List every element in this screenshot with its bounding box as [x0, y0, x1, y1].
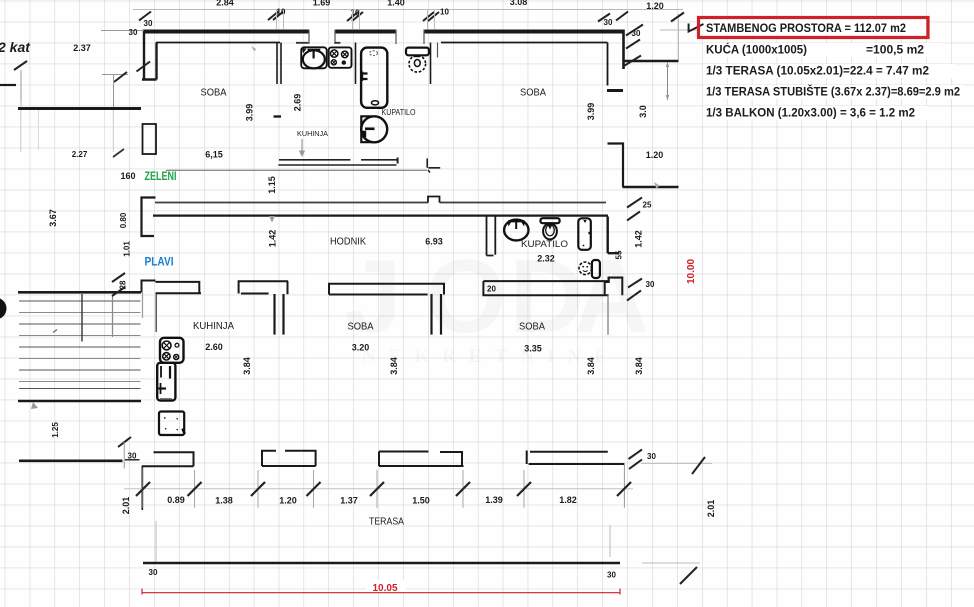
svg-text:1.01: 1.01 — [123, 241, 132, 257]
svg-text:3.84: 3.84 — [634, 357, 644, 375]
svg-text:=100,5 m2: =100,5 m2 — [866, 43, 924, 57]
svg-text:1/3 TERASA STUBIŠTE (3.67x 2.3: 1/3 TERASA STUBIŠTE (3.67x 2.37)=8.69=2.… — [706, 84, 960, 99]
svg-text:3.35: 3.35 — [524, 344, 542, 354]
svg-text:30: 30 — [607, 571, 616, 580]
svg-text:1.38: 1.38 — [215, 496, 233, 506]
svg-text:KUHINJA: KUHINJA — [297, 129, 328, 138]
svg-text:A: A — [573, 239, 648, 355]
svg-text:30: 30 — [632, 29, 641, 38]
svg-text:1.69: 1.69 — [313, 0, 331, 8]
svg-text:SOBA: SOBA — [520, 87, 546, 99]
svg-text:KUHINJA: KUHINJA — [193, 320, 234, 332]
svg-text:J: J — [344, 239, 402, 355]
svg-text:1.82: 1.82 — [559, 495, 577, 505]
svg-text:TERASA: TERASA — [369, 516, 404, 528]
svg-text:KUĆA (1000x1005): KUĆA (1000x1005) — [706, 42, 807, 57]
svg-text:SOBA: SOBA — [519, 321, 545, 333]
svg-text:1.42: 1.42 — [268, 230, 278, 248]
svg-text:KUPATILO: KUPATILO — [521, 239, 568, 250]
svg-text:ZELENI: ZELENI — [145, 169, 177, 183]
svg-text:3.0: 3.0 — [638, 105, 648, 118]
svg-text:2.32: 2.32 — [537, 254, 555, 264]
svg-text:2.01: 2.01 — [706, 500, 716, 518]
svg-text:1.15: 1.15 — [267, 176, 277, 194]
svg-text:2 kat: 2 kat — [0, 39, 31, 55]
svg-text:10.05: 10.05 — [372, 583, 397, 594]
svg-text:1.37: 1.37 — [340, 496, 358, 506]
svg-text:10.00: 10.00 — [686, 259, 697, 284]
svg-text:30: 30 — [149, 568, 158, 577]
svg-text:1.20: 1.20 — [279, 496, 297, 506]
svg-text:30: 30 — [604, 18, 613, 27]
svg-text:10: 10 — [440, 8, 449, 17]
svg-text:0.80: 0.80 — [119, 212, 128, 228]
svg-text:KUPATILO: KUPATILO — [382, 108, 416, 117]
svg-text:2.84: 2.84 — [216, 0, 234, 8]
svg-text:30: 30 — [144, 19, 153, 28]
svg-text:2.01: 2.01 — [121, 497, 131, 515]
svg-text:30: 30 — [646, 280, 655, 289]
svg-text:0.89: 0.89 — [167, 495, 185, 505]
svg-text:2.69: 2.69 — [293, 94, 303, 112]
svg-text:2.37: 2.37 — [73, 43, 91, 53]
svg-text:3.84: 3.84 — [389, 357, 399, 375]
svg-text:3.84: 3.84 — [242, 357, 252, 375]
svg-text:3.99: 3.99 — [586, 103, 596, 121]
svg-text:SOBA: SOBA — [348, 321, 374, 333]
svg-text:10: 10 — [277, 8, 286, 17]
svg-text:3.67: 3.67 — [48, 209, 58, 227]
svg-text:O: O — [426, 239, 507, 355]
svg-text:1.39: 1.39 — [485, 495, 503, 505]
svg-text:STAMBENOG PROSTORA = 112.07 m2: STAMBENOG PROSTORA = 112.07 m2 — [706, 21, 906, 35]
svg-text:1/3 BALKON (1.20x3.00) = 3,6 =: 1/3 BALKON (1.20x3.00) = 3,6 = 1.2 m2 — [706, 106, 915, 120]
svg-text:PLAVI: PLAVI — [145, 257, 174, 269]
svg-text:HODNIK: HODNIK — [330, 236, 366, 248]
svg-text:3.08: 3.08 — [510, 0, 528, 7]
svg-text:NEKRETNINE: NEKRETNINE — [362, 346, 620, 367]
svg-text:3.99: 3.99 — [245, 104, 255, 122]
svg-text:1.25: 1.25 — [51, 422, 60, 438]
svg-text:160: 160 — [120, 171, 135, 181]
svg-text:2.60: 2.60 — [205, 342, 223, 352]
svg-text:1.42: 1.42 — [634, 230, 644, 248]
svg-text:30: 30 — [647, 452, 656, 461]
svg-text:SOBA: SOBA — [201, 87, 227, 99]
svg-text:25: 25 — [643, 201, 652, 210]
svg-text:1.20: 1.20 — [646, 150, 664, 160]
svg-text:3.84: 3.84 — [586, 357, 596, 375]
svg-text:30: 30 — [129, 28, 138, 37]
svg-text:6.93: 6.93 — [425, 237, 443, 247]
svg-text:10: 10 — [351, 9, 360, 18]
svg-text:1.50: 1.50 — [412, 496, 430, 506]
svg-text:3.20: 3.20 — [352, 343, 370, 353]
svg-text:1/3 TERASA (10.05x2.01)=22.4 =: 1/3 TERASA (10.05x2.01)=22.4 = 7.47 m2 — [706, 64, 929, 78]
svg-text:1.20: 1.20 — [646, 1, 664, 11]
svg-text:55: 55 — [615, 250, 624, 259]
svg-text:20: 20 — [487, 285, 496, 294]
svg-text:6,15: 6,15 — [205, 150, 223, 160]
svg-text:1.40: 1.40 — [387, 0, 405, 8]
svg-text:2.27: 2.27 — [72, 150, 88, 159]
